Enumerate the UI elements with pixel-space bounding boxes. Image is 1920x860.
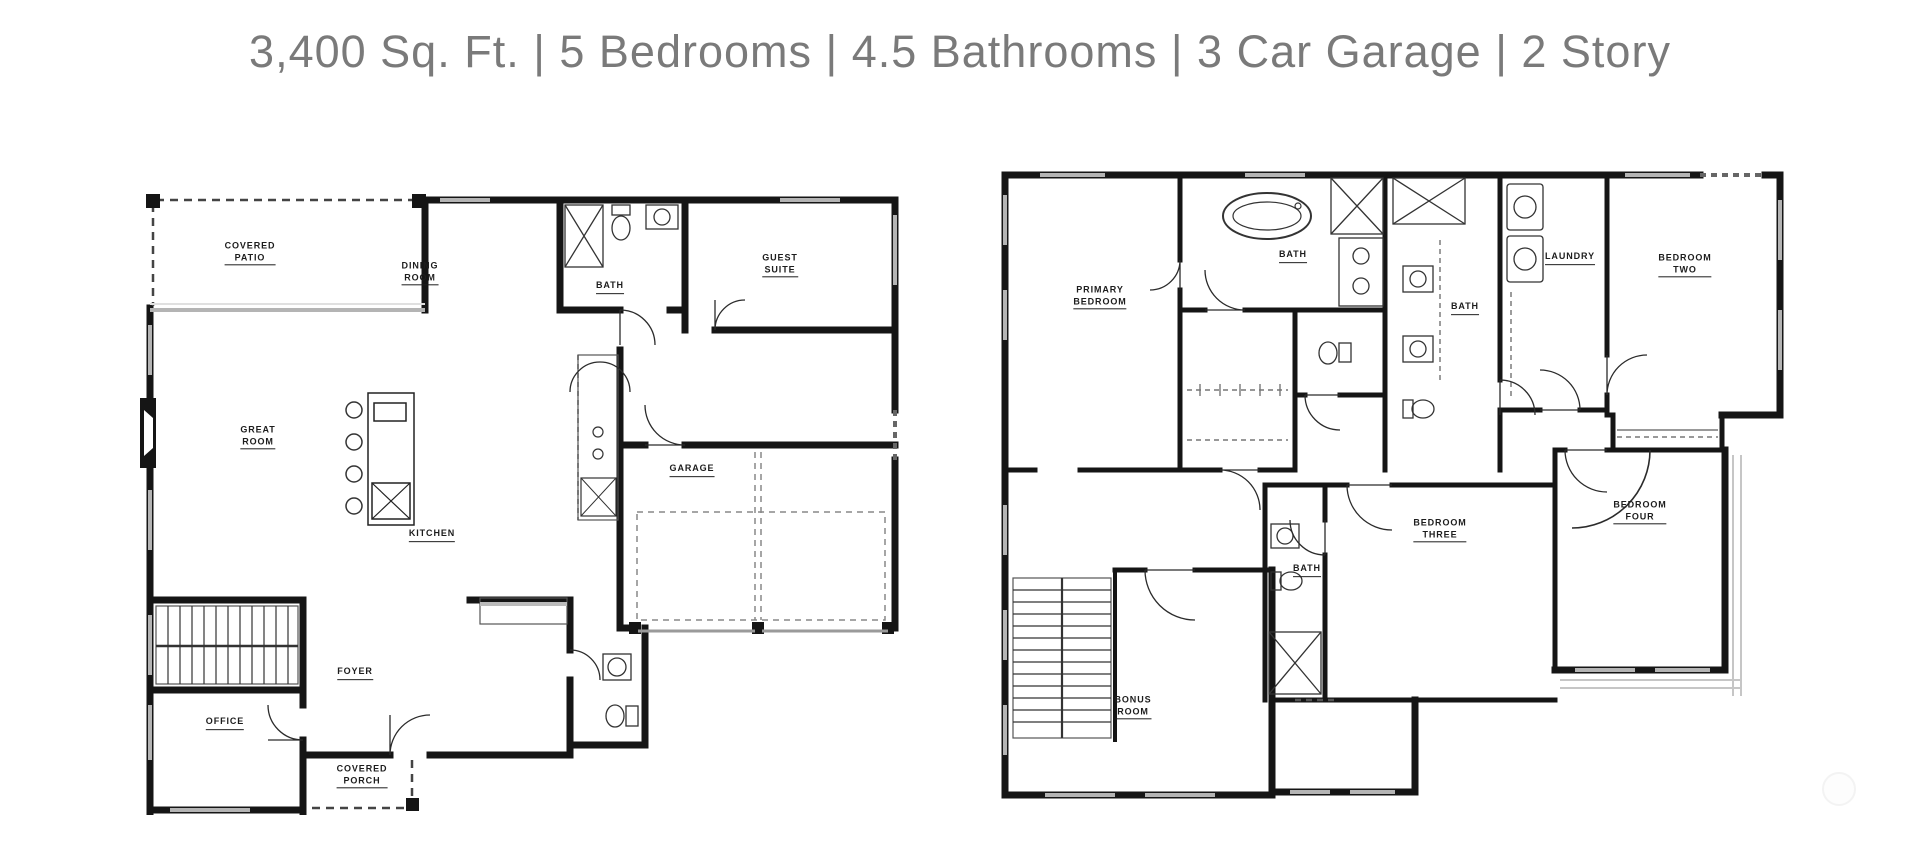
first-floor-plan: COVEREDPATIO DININGROOM BATH GUESTSUITE …: [140, 160, 905, 815]
bath-three-fixtures: [1269, 524, 1321, 694]
toilet-icon: [1319, 342, 1351, 364]
room-label-dining-room: DININGROOM: [402, 260, 439, 285]
sink-icon: [603, 654, 631, 680]
sink-icon: [374, 403, 406, 421]
sink-icon: [1353, 278, 1369, 294]
laundry-fixtures: [1507, 184, 1543, 398]
room-label-hall-bath: BATH: [1451, 301, 1479, 315]
room-label-great-room: GREATROOM: [240, 424, 275, 449]
stairs-icon: [156, 606, 298, 684]
room-label-guest-suite: GUESTSUITE: [762, 252, 798, 277]
room-label-covered-porch: COVEREDPORCH: [337, 763, 388, 788]
room-label-bedroom-four: BEDROOMFOUR: [1613, 499, 1666, 524]
room-label-bedroom-two: BEDROOMTWO: [1658, 252, 1711, 277]
page-title: 3,400 Sq. Ft. | 5 Bedrooms | 4.5 Bathroo…: [0, 26, 1920, 78]
powder-fixtures: [603, 654, 638, 727]
sink-icon: [1403, 336, 1433, 362]
sink-icon: [1271, 524, 1299, 548]
door-swings: [268, 300, 745, 755]
stool-icon: [346, 466, 362, 482]
windows: [150, 200, 895, 810]
sink-icon: [1403, 266, 1433, 292]
room-label-primary-bedroom: PRIMARYBEDROOM: [1073, 284, 1126, 309]
stairs-icon: [1013, 578, 1111, 738]
shower-icon: [1269, 632, 1321, 694]
shower-icon: [1331, 178, 1383, 234]
stool-icon: [346, 434, 362, 450]
shower-icon: [1393, 178, 1465, 224]
washer-icon: [1507, 184, 1543, 230]
stool-icon: [346, 402, 362, 418]
room-label-primary-bath: BATH: [1279, 249, 1307, 263]
room-label-garage: GARAGE: [670, 463, 715, 477]
garage-door-band: [629, 622, 894, 634]
toilet-icon: [612, 205, 630, 240]
hall-bath-fixtures: [1393, 178, 1465, 418]
bar-stools: [346, 402, 362, 514]
dryer-icon: [1507, 236, 1543, 282]
burner-icon: [593, 427, 603, 437]
kitchen-counter: [578, 355, 618, 520]
door-swings: [1145, 260, 1650, 620]
fireplace-icon: [140, 398, 156, 468]
sink-icon: [646, 205, 678, 229]
room-label-covered-patio: COVEREDPATIO: [225, 240, 276, 265]
room-label-bath-three: BATH: [1293, 563, 1321, 577]
floor-plan-page: 3,400 Sq. Ft. | 5 Bedrooms | 4.5 Bathroo…: [0, 0, 1920, 860]
bay-window: [1617, 430, 1718, 437]
room-label-laundry: LAUNDRY: [1545, 251, 1595, 265]
stool-icon: [346, 498, 362, 514]
room-label-kitchen: KITCHEN: [409, 528, 455, 542]
toilet-icon: [1403, 400, 1434, 418]
room-label-bath: BATH: [596, 280, 624, 294]
closet-rods: [1187, 384, 1288, 440]
room-label-bonus-room: BONUSROOM: [1114, 694, 1151, 719]
second-floor-plan: PRIMARYBEDROOM BATH LAUNDRY BEDROOMTWO B…: [995, 140, 1790, 815]
walls: [150, 200, 895, 812]
primary-bath-fixtures: [1223, 178, 1383, 364]
toilet-icon: [606, 705, 638, 727]
deck-outline: [1560, 455, 1741, 696]
bathtub-icon: [1223, 193, 1311, 239]
bath1-fixtures: [565, 205, 678, 267]
room-label-bedroom-three: BEDROOMTHREE: [1413, 517, 1466, 542]
room-label-foyer: FOYER: [337, 666, 373, 680]
room-label-office: OFFICE: [206, 716, 244, 730]
burner-icon: [593, 449, 603, 459]
sink-icon: [1353, 248, 1369, 264]
garage-bays: [637, 452, 885, 620]
kitchen-island: [368, 393, 414, 525]
covered-patio-outline: [146, 194, 426, 310]
watermark-circle: [1822, 772, 1856, 806]
vanity-sinks: [1339, 238, 1383, 306]
